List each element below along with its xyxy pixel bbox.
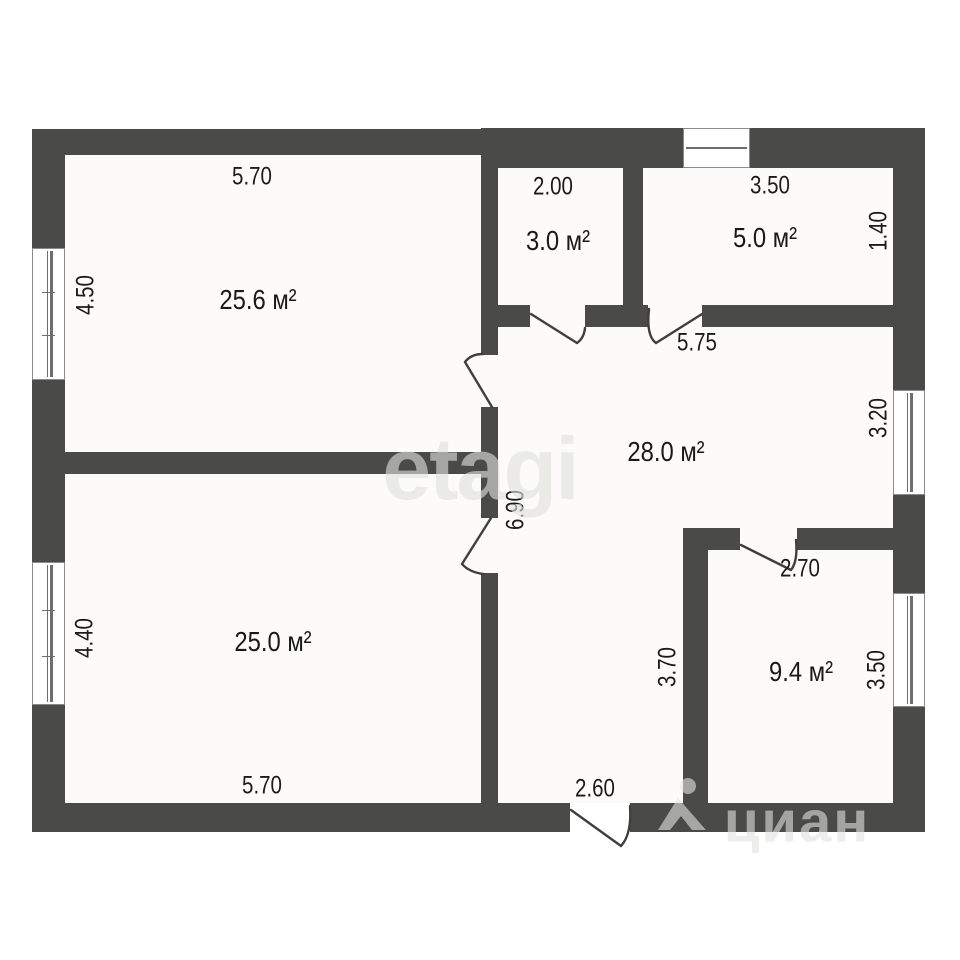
- dim-label-2-70: 2.70: [780, 557, 820, 582]
- door-room-3-0: [531, 314, 585, 343]
- dim-label-3-50-top: 3.50: [750, 174, 790, 199]
- room-area-label-28-0: 28.0 м²: [627, 438, 704, 466]
- dim-label-2-60: 2.60: [575, 777, 615, 802]
- door-entry: [571, 806, 630, 846]
- door-room-25-0: [462, 518, 491, 574]
- room-area-label-25-6: 25.6 м²: [219, 286, 296, 314]
- room-area-label-3-0: 3.0 м²: [526, 227, 590, 255]
- dim-label-3-20: 3.20: [867, 398, 892, 438]
- floor-plan: 25.6 м² 3.0 м² 5.0 м² 28.0 м² 25.0 м² 9.…: [0, 0, 960, 960]
- dim-label-5-75: 5.75: [677, 331, 717, 356]
- room-area-label-9-4: 9.4 м²: [769, 658, 833, 686]
- dim-label-1-40: 1.40: [867, 211, 892, 251]
- dim-label-5-70-top: 5.70: [232, 165, 272, 190]
- dim-label-3-70: 3.70: [656, 647, 681, 687]
- dim-label-5-70-bottom: 5.70: [242, 774, 282, 799]
- door-swings: [0, 0, 960, 960]
- dim-label-4-40: 4.40: [73, 618, 98, 658]
- dim-label-6-90: 6.90: [504, 490, 529, 530]
- dim-label-3-50-right: 3.50: [865, 650, 890, 690]
- dim-label-4-50: 4.50: [74, 275, 99, 315]
- dim-label-2-00: 2.00: [533, 175, 573, 200]
- door-room-25-6: [465, 354, 492, 407]
- room-area-label-5-0: 5.0 м²: [733, 224, 797, 252]
- room-area-label-25-0: 25.0 м²: [234, 628, 311, 656]
